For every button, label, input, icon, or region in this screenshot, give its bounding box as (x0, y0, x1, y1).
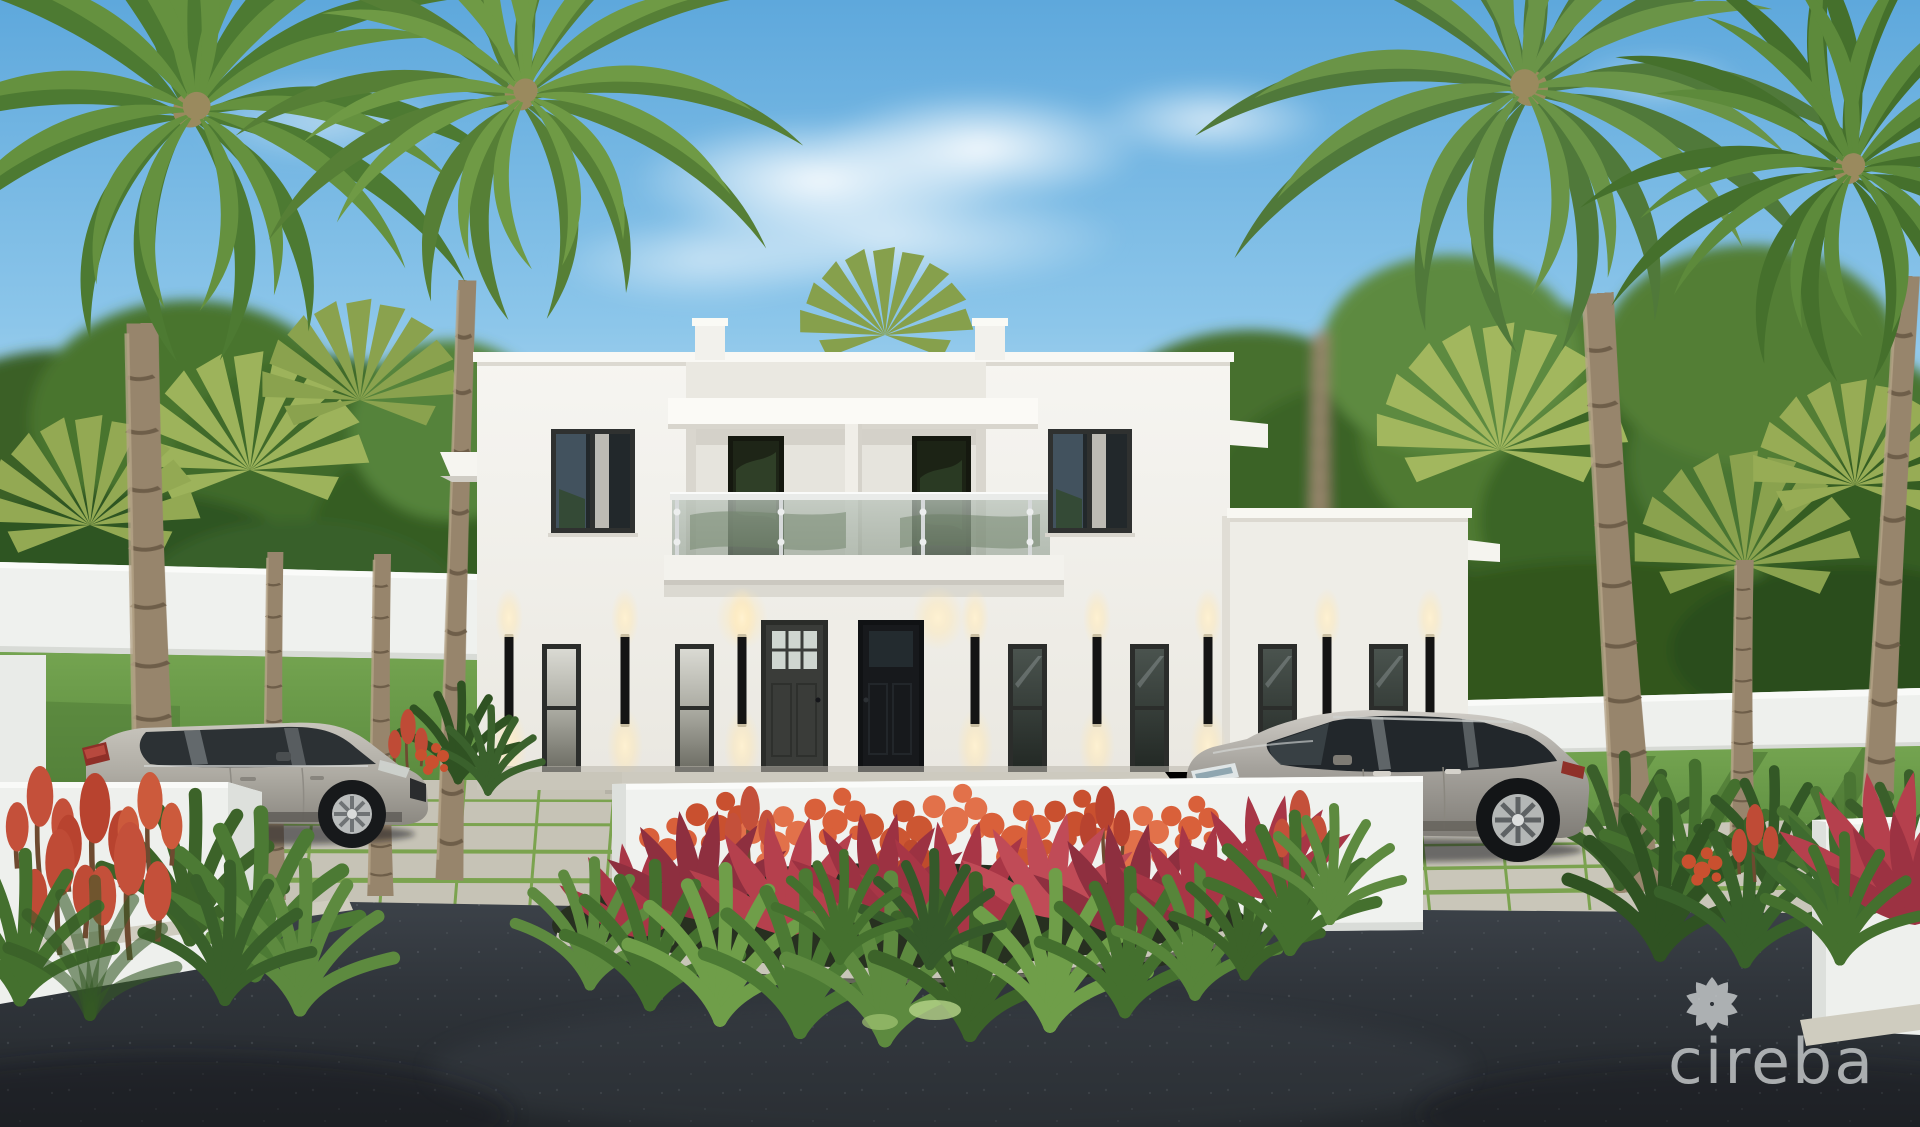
ground-window (1008, 644, 1047, 772)
entry-door-right (858, 620, 924, 772)
side-mirror (276, 752, 291, 761)
perimeter-wall-left (0, 562, 477, 660)
door-pier (828, 620, 858, 772)
wheel (318, 780, 386, 848)
balcony-recess-upper (686, 362, 986, 398)
rendering-image: cireba (0, 0, 1920, 1127)
side-mirror (1333, 755, 1352, 765)
wheel (1476, 778, 1560, 862)
balcony-glass-railing (670, 492, 1052, 557)
upper-window-right (1048, 429, 1132, 533)
watermark-text: cireba (1668, 1025, 1875, 1098)
balcony-floor-slab (664, 555, 1064, 583)
balcony-overhang (668, 398, 1038, 424)
upper-window-left (551, 429, 635, 533)
ground-window (1130, 644, 1169, 772)
side-eave-right (1230, 420, 1268, 448)
entry-door-left (761, 620, 828, 772)
ground-window (675, 644, 714, 772)
ground-window (542, 644, 581, 772)
roof-parapet (473, 352, 1234, 362)
wing-parapet (1227, 508, 1472, 518)
